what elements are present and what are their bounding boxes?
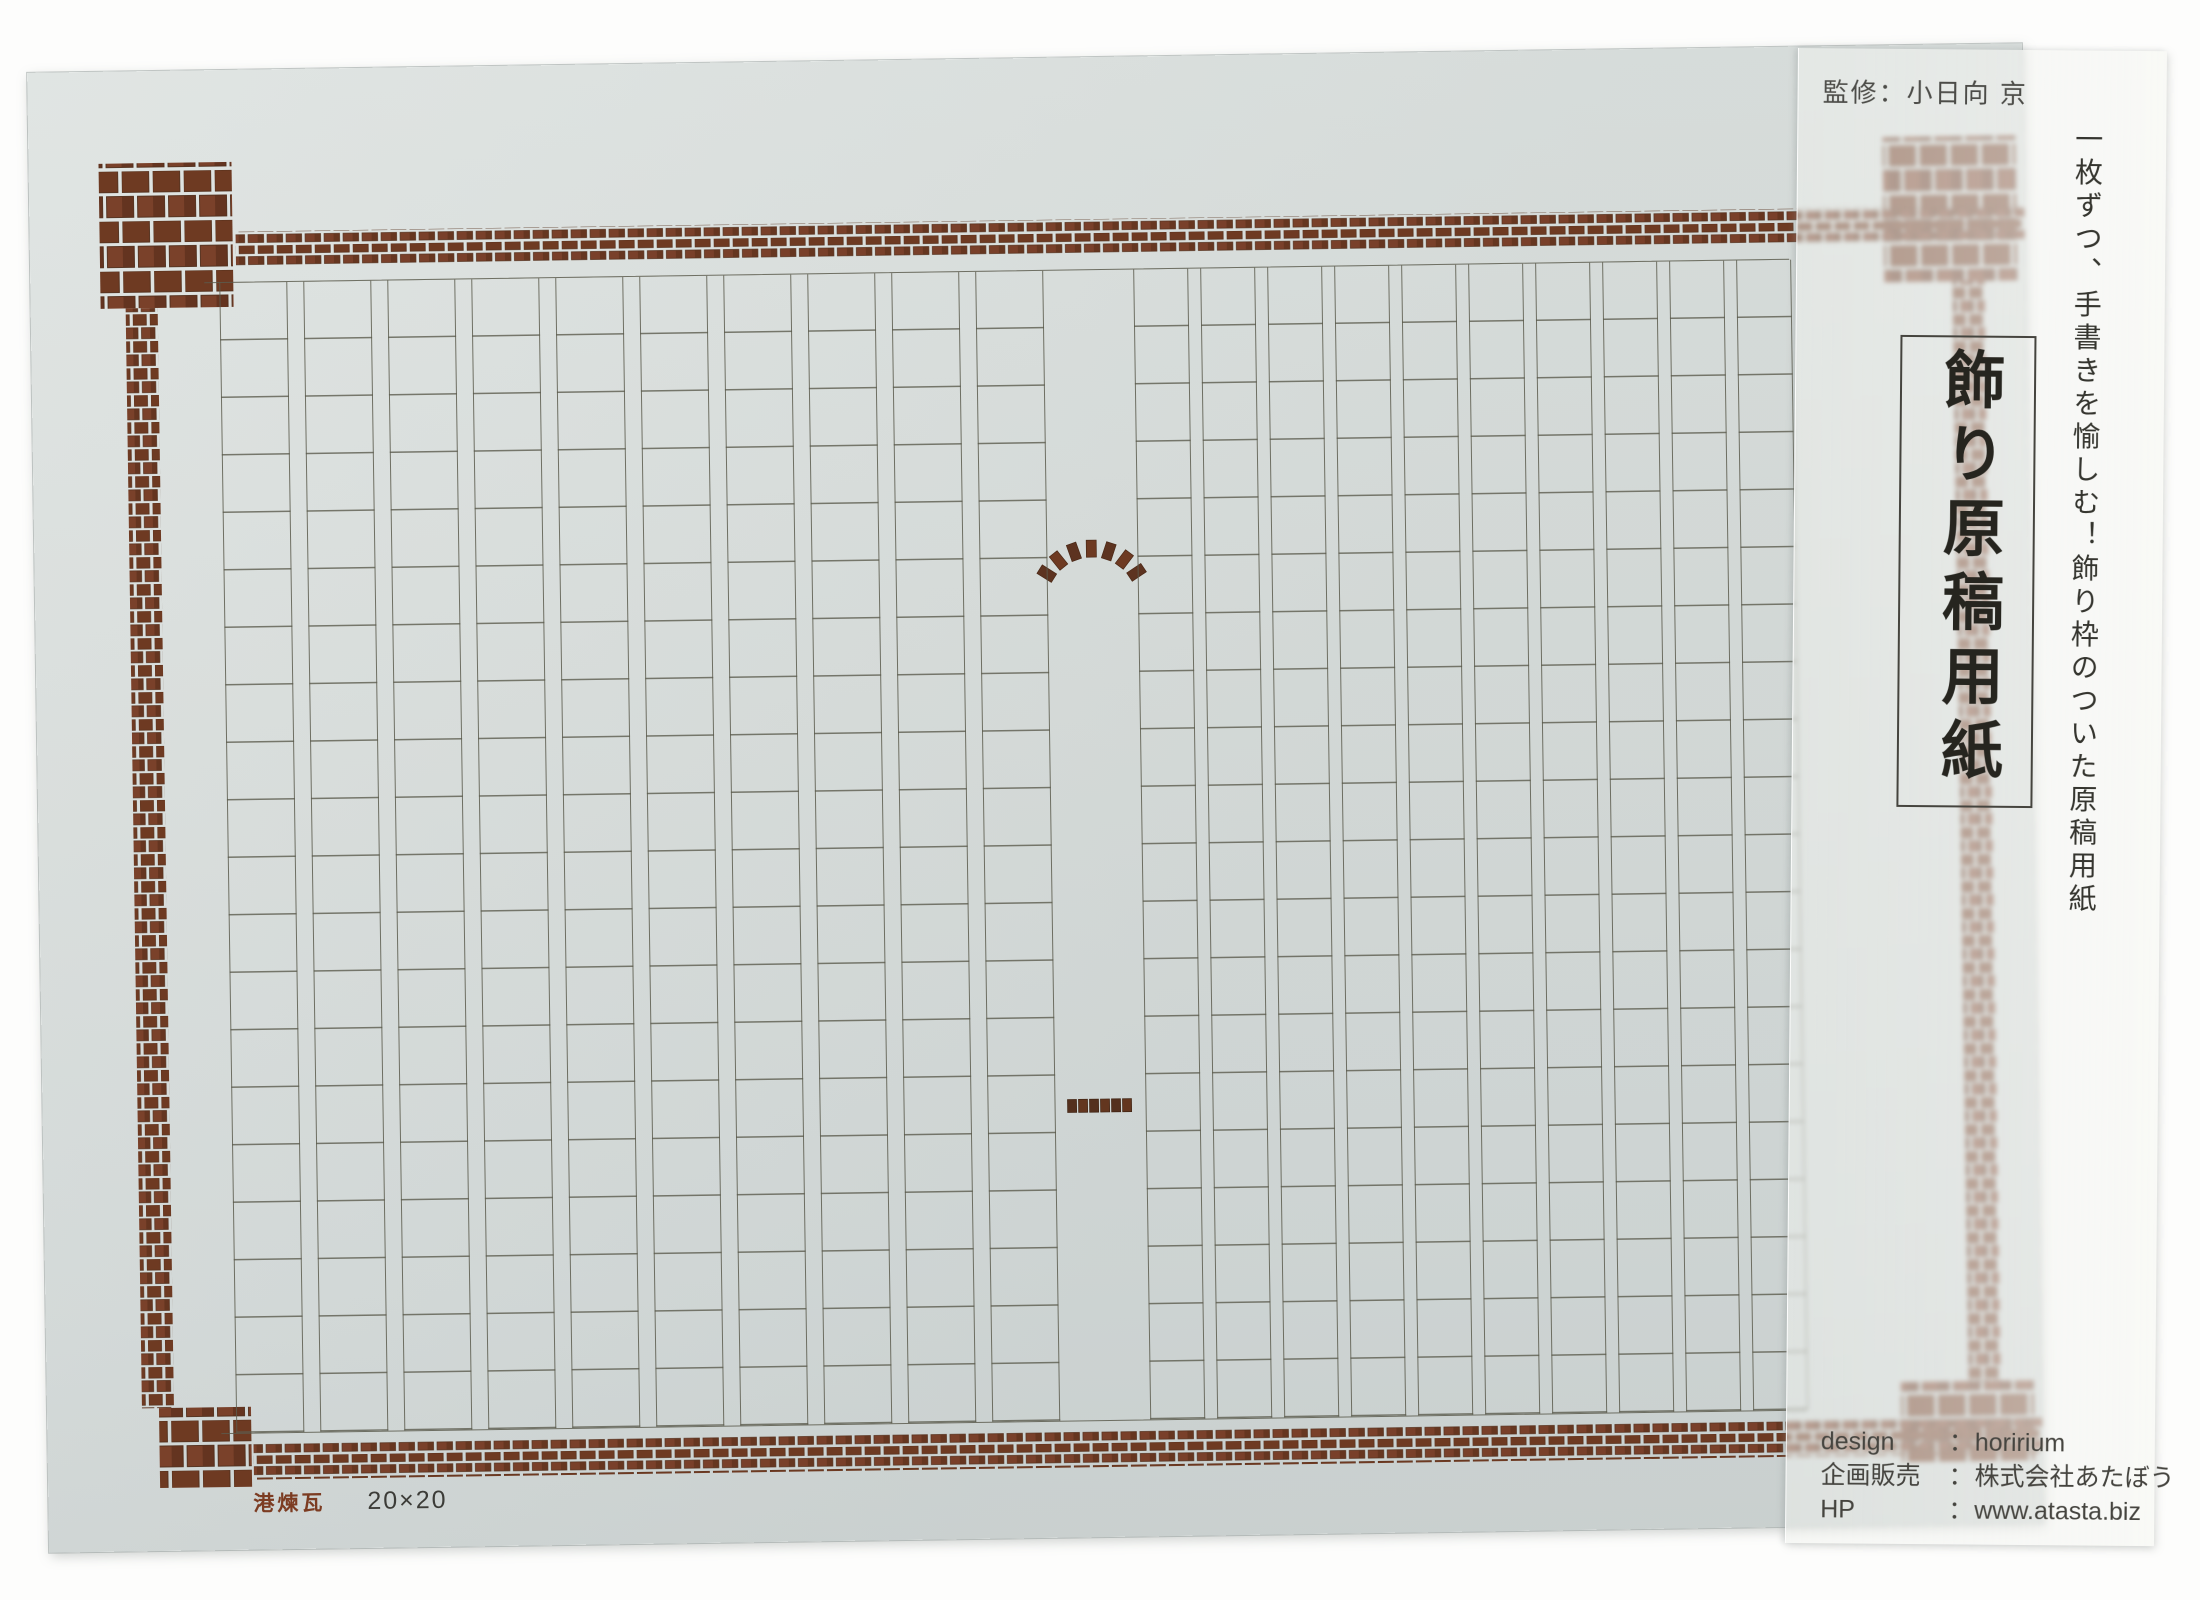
caption-row: 港煉瓦 20×20 [253, 1485, 448, 1518]
info-value: www.atasta.biz [1974, 1494, 2141, 1529]
info-label: design [1821, 1424, 1949, 1459]
info-block: design ： horirium 企画販売 ： 株式会社あたぼう HP ： w… [1820, 1424, 2175, 1529]
grid-column [1133, 269, 1205, 1420]
grid-column [891, 272, 976, 1423]
manuscript-grid [204, 259, 1806, 1434]
info-colon: ： [1948, 1459, 1974, 1493]
grid-column [471, 278, 556, 1429]
product-label-strip: 監修：小日向 京 一枚ずつ、手書きを愉しむ！飾り枠のついた原稿用紙 飾り原稿用紙… [1785, 48, 2167, 1546]
grid-column [1267, 267, 1339, 1418]
grid-column [1535, 263, 1607, 1414]
grid-column [1669, 261, 1741, 1412]
grid-column [303, 281, 388, 1432]
grid-column [807, 273, 892, 1424]
grid-column [639, 276, 724, 1427]
info-colon: ： [1949, 1425, 1975, 1459]
supervisor-note: 監修：小日向 京 [1822, 72, 2028, 111]
grid-column [1334, 266, 1406, 1417]
grid-column [387, 280, 472, 1431]
vertical-tagline: 一枚ずつ、手書きを愉しむ！飾り枠のついた原稿用紙 [2060, 124, 2107, 894]
product-title: 飾り原稿用紙 [1919, 347, 2013, 806]
grid-column [555, 277, 640, 1428]
manuscript-paper-sheet: 港煉瓦 20×20 [27, 43, 2044, 1552]
pattern-name-caption: 港煉瓦 [253, 1487, 325, 1518]
product-title-box: 飾り原稿用紙 [1896, 335, 2036, 808]
info-value: horirium [1975, 1426, 2066, 1461]
info-label: HP [1820, 1492, 1948, 1527]
grid-column [1468, 264, 1540, 1415]
info-row: design ： horirium [1821, 1424, 2175, 1461]
grid-column [975, 271, 1060, 1422]
info-label: 企画販売 [1820, 1458, 1948, 1493]
info-row: HP ： www.atasta.biz [1820, 1492, 2174, 1529]
grid-column [723, 275, 808, 1426]
brick-strip-top [236, 205, 2025, 266]
grid-column [1200, 268, 1272, 1419]
grid-size-caption: 20×20 [367, 1486, 448, 1516]
grid-column [1602, 262, 1674, 1413]
grid-column [219, 282, 304, 1433]
info-colon: ： [1948, 1493, 1974, 1527]
info-value: 株式会社あたぼう [1974, 1460, 2174, 1496]
photo-background: 港煉瓦 20×20 監修：小日向 京 一枚ずつ、手書きを愉しむ！飾り枠のついた原… [0, 0, 2200, 1600]
grid-column [1401, 265, 1473, 1416]
brick-strip-left [126, 308, 174, 1408]
info-row: 企画販売 ： 株式会社あたぼう [1820, 1458, 2174, 1495]
